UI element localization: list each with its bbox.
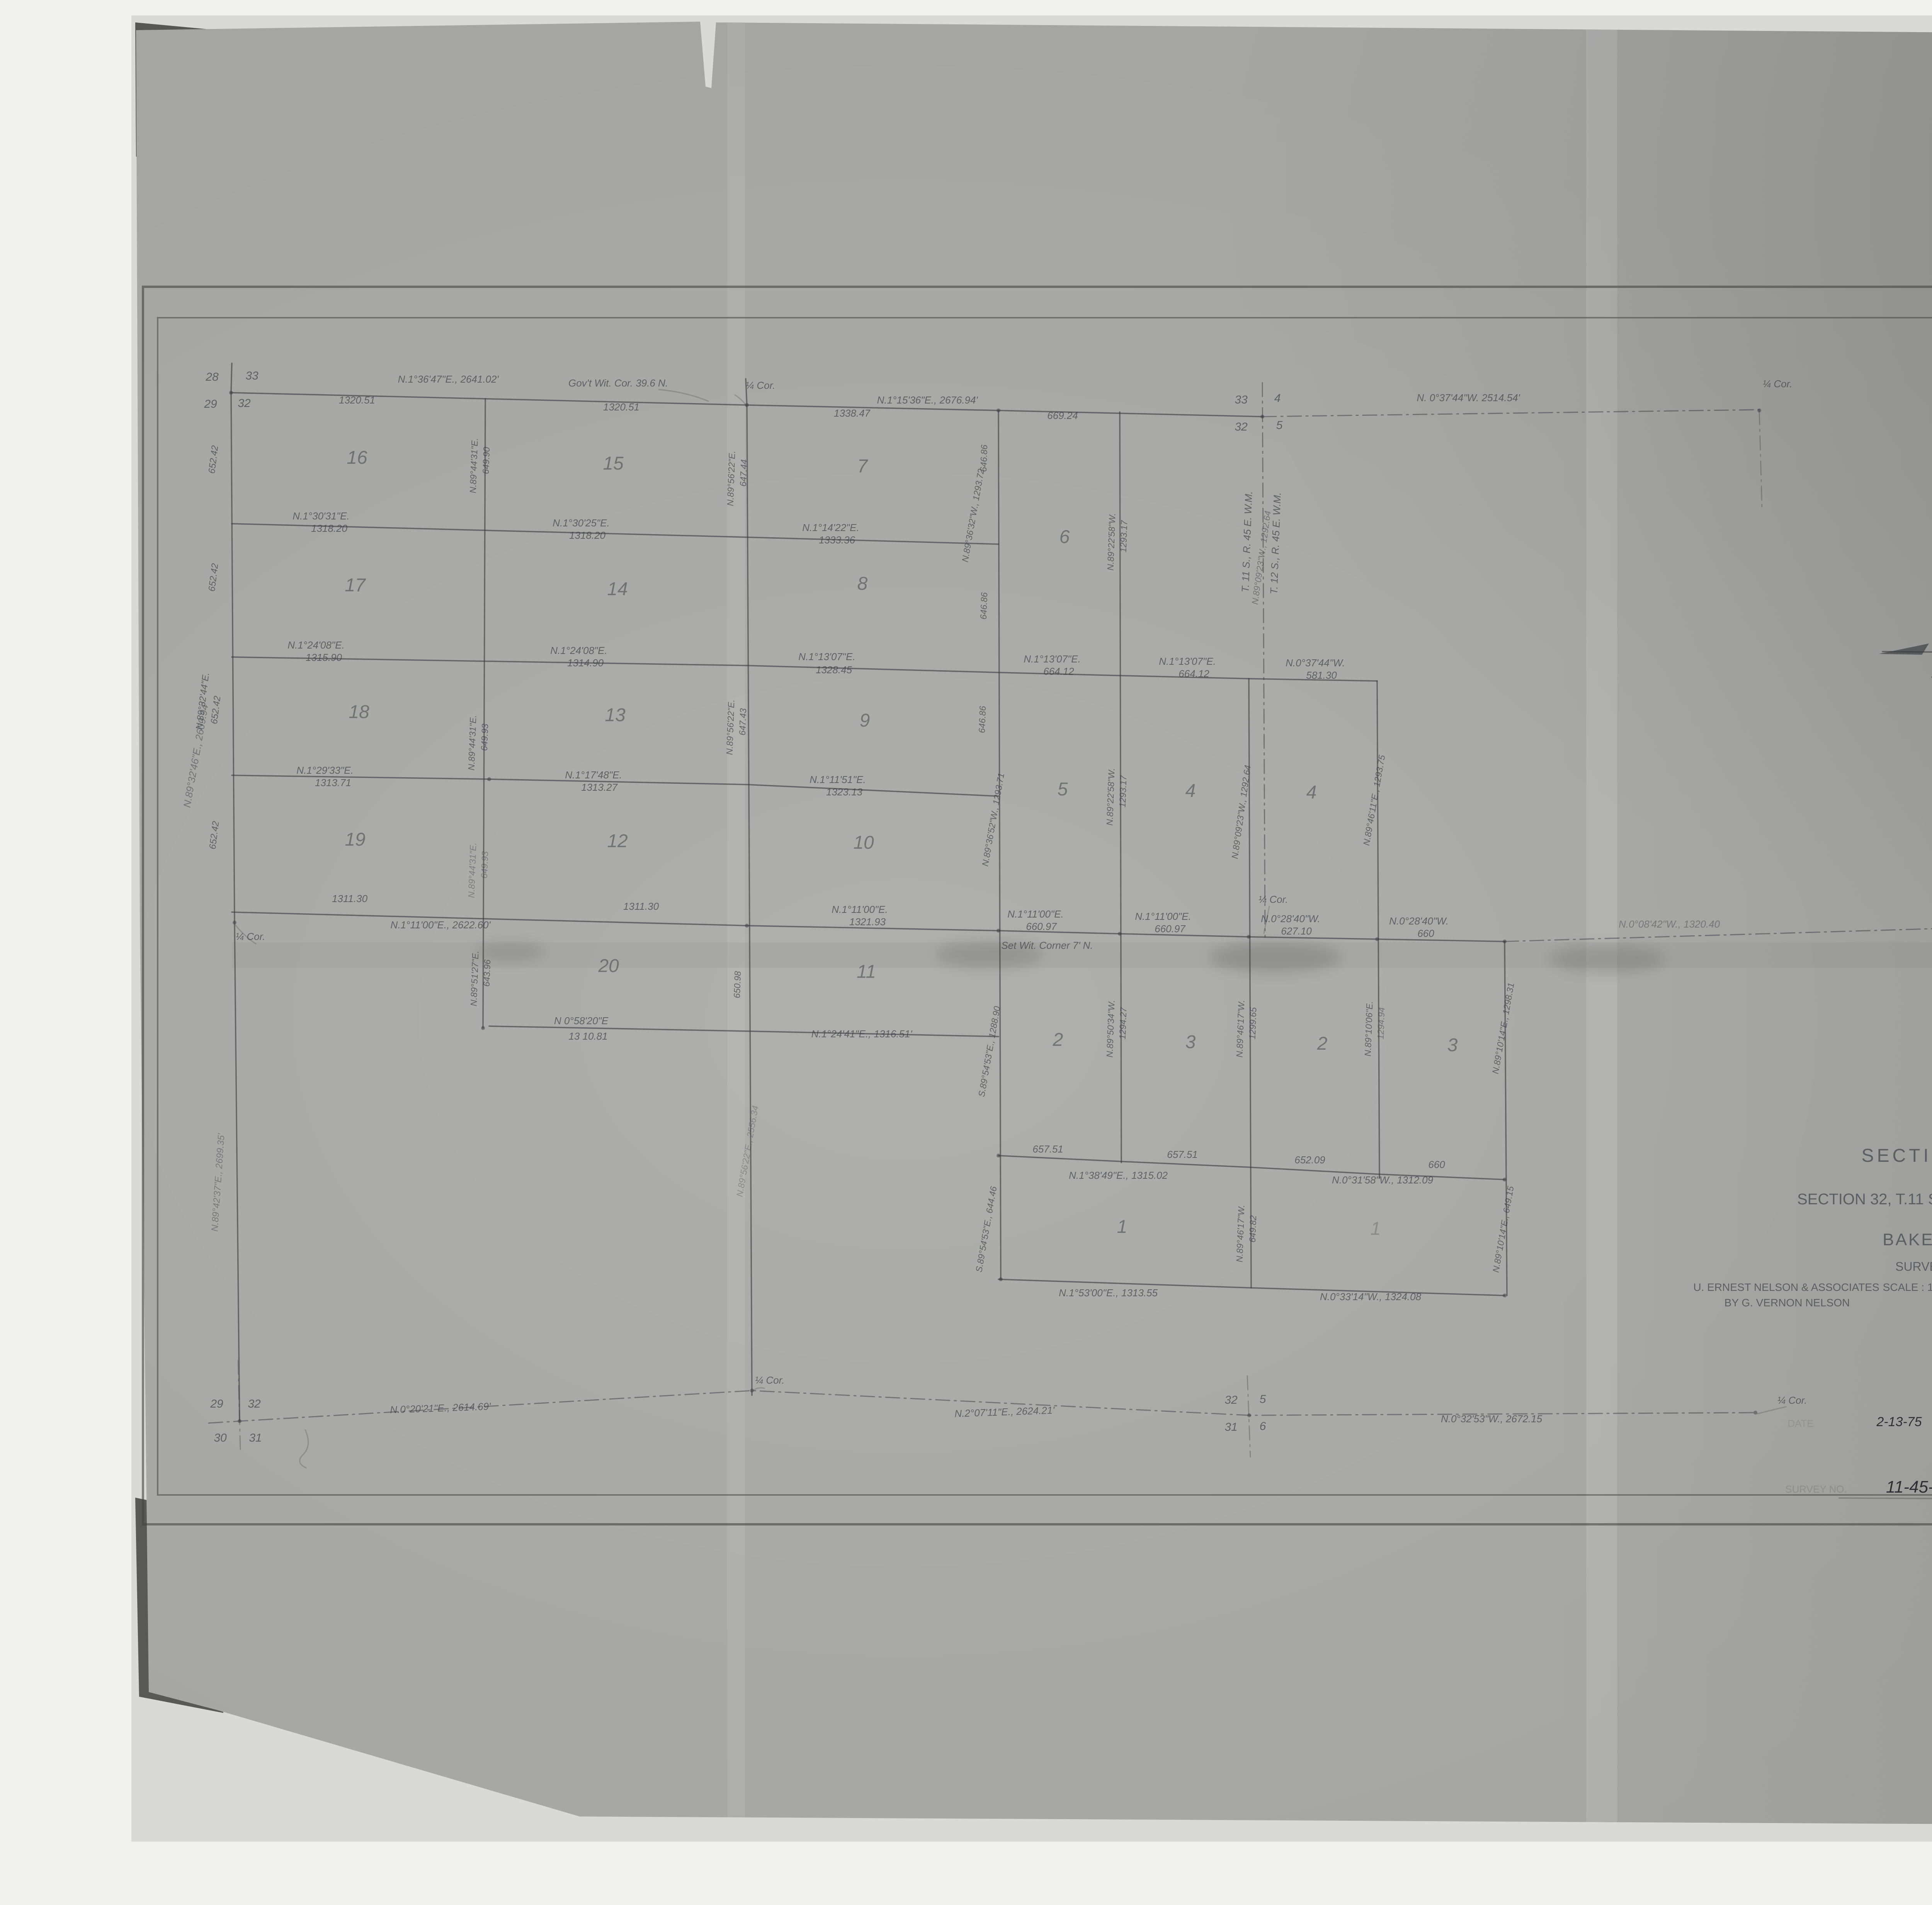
survey-annotation: 646.86	[977, 706, 988, 733]
lot-number: 14	[607, 579, 628, 599]
survey-annotation: N.1°13'07"E.	[798, 651, 855, 662]
survey-annotation: 13 10.81	[568, 1030, 607, 1042]
survey-annotation: N.0°28'40"W.	[1389, 915, 1449, 927]
survey-annotation: N.1°24'08"E.	[550, 645, 607, 656]
survey-annotation: 664.12	[1179, 668, 1209, 679]
survey-annotation: N 0°58'20"E	[554, 1015, 609, 1027]
corner-point	[1503, 1178, 1507, 1181]
lot-number: 15	[603, 453, 624, 474]
survey-annotation: N.1°29'33"E.	[296, 764, 353, 776]
survey-annotation: 646.86	[978, 444, 989, 472]
survey-annotation: N.1°15'36"E., 2676.94'	[877, 394, 978, 406]
survey-annotation: 1293.17	[1118, 520, 1129, 553]
lot-number: 3	[1185, 1032, 1196, 1052]
survey-annotation: N.1°24'41"E., 1316.51'	[811, 1028, 913, 1040]
lot-number: 4	[1306, 782, 1317, 803]
survey-annotation: N.1°30'31"E.	[293, 510, 349, 522]
survey-annotation: N.1°11'00"E.	[832, 904, 888, 915]
survey-annotation: N.1°13'07"E.	[1024, 653, 1080, 665]
survey-annotation: 32	[1225, 1394, 1238, 1406]
scanned-plat-page: 28332932N.1°36'47"E., 2641.02'1320.51Gov…	[0, 0, 1932, 1905]
lot-number: 1	[1371, 1219, 1381, 1239]
survey-annotation: 33	[1235, 393, 1248, 406]
corner-point	[1247, 935, 1251, 939]
corner-point	[997, 929, 1000, 933]
survey-annotation: N.89°10'06"E.	[1363, 1001, 1375, 1057]
survey-annotation: 1315.90	[306, 652, 342, 663]
survey-no-value: 11-45-2	[1886, 1478, 1932, 1496]
survey-annotation: N.1°38'49"E., 1315.02	[1069, 1170, 1168, 1181]
title-by: BY G. VERNON NELSON	[1725, 1297, 1850, 1309]
survey-annotation: 660	[1417, 928, 1434, 939]
survey-annotation: 32	[248, 1398, 261, 1410]
lot-number: 10	[853, 832, 874, 853]
survey-annotation: 650.98	[732, 971, 743, 998]
survey-annotation: N.1°13'07"E.	[1159, 655, 1216, 667]
title-county: BAKER COUNTY, OREGON	[1883, 1230, 1932, 1249]
survey-annotation: N.89°44'31"E.	[468, 438, 480, 494]
survey-annotation: N.1°11'00"E.	[1135, 911, 1191, 922]
survey-annotation: N.0°31'58"W., 1312.09	[1332, 1174, 1433, 1186]
corner-point	[1260, 415, 1264, 419]
corner-point	[997, 409, 1000, 412]
survey-annotation: N.89°50'34"W.	[1104, 1000, 1116, 1058]
survey-annotation: N.1°53'00"E., 1313.55	[1059, 1287, 1158, 1299]
survey-annotation: ¼ Cor.	[1258, 894, 1288, 905]
lot-number: 12	[607, 831, 628, 851]
survey-annotation: 28	[205, 371, 219, 383]
survey-annotation: 1333.36	[819, 534, 855, 546]
survey-annotation: N.89°44'31"E.	[466, 715, 478, 771]
survey-annotation: 29	[204, 398, 217, 410]
survey-annotation: 660.97	[1155, 923, 1186, 935]
survey-annotation: 1320.51	[603, 401, 639, 413]
lot-number: 5	[1058, 779, 1068, 800]
survey-annotation: 660	[1428, 1159, 1445, 1170]
survey-annotation: N.0°32'53"W., 2672.15	[1441, 1413, 1543, 1425]
lot-number: 11	[857, 962, 876, 982]
survey-annotation: 1318.20	[311, 523, 348, 534]
survey-annotation: N.1°24'08"E.	[287, 639, 344, 651]
survey-annotation: 5	[1260, 1393, 1266, 1406]
survey-annotation: 647.43	[737, 708, 748, 735]
survey-annotation: ¼ Cor.	[755, 1374, 784, 1386]
survey-annotation: N.89°51'27"E.	[469, 951, 481, 1006]
lot-number: 1	[1117, 1217, 1128, 1237]
survey-annotation: 649.82	[1247, 1215, 1258, 1243]
survey-annotation: 627.10	[1281, 925, 1312, 937]
survey-annotation: N.0°28'40"W.	[1261, 913, 1320, 924]
survey-annotation: 1314.90	[567, 657, 604, 669]
survey-no-underline	[1839, 1498, 1932, 1499]
survey-annotation: 581.30	[1306, 669, 1337, 681]
survey-annotation: N.89°46'17"W.	[1234, 1205, 1246, 1263]
survey-annotation: 649.90	[481, 447, 492, 474]
survey-annotation: N.1°30'25"E.	[553, 517, 609, 529]
survey-annotation: N.1°36'47"E., 2641.02'	[398, 373, 499, 385]
survey-annotation: 1338.47	[834, 407, 871, 419]
survey-annotation: 1313.27	[581, 781, 618, 793]
survey-annotation: N.1°11'51"E.	[810, 774, 866, 785]
survey-annotation: ¼ Cor.	[1777, 1394, 1807, 1406]
survey-annotation: 646.86	[978, 592, 989, 620]
corner-point	[1503, 940, 1507, 943]
survey-annotation: 1318.20	[569, 529, 606, 541]
lot-number: 6	[1060, 527, 1070, 547]
lot-number: 3	[1447, 1035, 1458, 1055]
survey-annotation: N.89°44'31"E.	[466, 843, 478, 898]
survey-annotation: 31	[249, 1432, 262, 1444]
survey-annotation: N.1°14'22"E.	[802, 522, 859, 533]
title-surveyed: SURVEYED; APRIL, MAY & JUNE, 1949	[1895, 1260, 1932, 1273]
survey-annotation: N.89°22'58"W.	[1105, 513, 1117, 571]
survey-annotation: N.1°11'00"E., 2622.60'	[391, 919, 491, 931]
survey-annotation: 649.93	[479, 724, 490, 751]
lot-number: 19	[345, 829, 365, 850]
survey-annotation: N. 0°37'44"W. 2514.54'	[1417, 392, 1520, 403]
survey-annotation: N.0°33'14"W., 1324.08	[1320, 1291, 1422, 1302]
corner-point	[997, 1154, 1000, 1158]
survey-annotation: 649.93	[479, 851, 490, 878]
corner-point	[745, 924, 749, 928]
survey-annotation: 33	[245, 369, 259, 382]
lot-number: 20	[598, 956, 619, 976]
page-title: SECTIONAL SUBDIVISION	[1861, 1146, 1932, 1166]
corner-point	[229, 391, 233, 395]
lot-number: 13	[605, 705, 626, 725]
survey-annotation: N.0°37'44"W.	[1286, 657, 1345, 669]
corner-point	[238, 1419, 241, 1423]
survey-annotation: 6	[1260, 1420, 1266, 1433]
lot-number: 2	[1053, 1030, 1063, 1050]
survey-annotation: N.1°17'48"E.	[565, 769, 622, 781]
corner-point	[1375, 937, 1379, 941]
corner-point	[1757, 409, 1761, 412]
survey-annotation: ¼ Cor.	[1762, 378, 1792, 390]
title-sections: SECTION 32, T.11 S., R.45 E. & SECTION 5…	[1797, 1191, 1932, 1208]
survey-annotation: 4	[1274, 392, 1281, 405]
lot-number: 16	[347, 448, 367, 468]
title-scale: SCALE : 1" = 400'	[1883, 1281, 1932, 1293]
survey-annotation: ¼ Cor.	[745, 380, 775, 391]
survey-annotation: 652.09	[1294, 1154, 1325, 1166]
survey-annotation: N.89°56'22"E.	[725, 451, 737, 506]
fold-smudge	[475, 941, 545, 962]
lot-number: 2	[1317, 1033, 1328, 1054]
survey-annotation: 647.44	[738, 459, 749, 487]
lot-number: 17	[345, 575, 366, 596]
filing-date-label: DATE	[1787, 1418, 1813, 1429]
survey-annotation: 1320.51	[339, 394, 375, 406]
corner-point	[1247, 1413, 1251, 1417]
lot-number: 4	[1185, 781, 1196, 801]
survey-annotation: 1323.13	[826, 786, 863, 798]
survey-annotation: 29	[210, 1398, 223, 1410]
survey-annotation: 1321.93	[849, 916, 886, 928]
survey-annotation: N.1°11'00"E.	[1007, 908, 1064, 920]
survey-annotation: 657.51	[1032, 1143, 1063, 1155]
title-firm: U. ERNEST NELSON & ASSOCIATES	[1693, 1281, 1879, 1293]
lot-number: 7	[857, 456, 869, 477]
corner-point	[1118, 932, 1122, 936]
corner-point	[999, 1277, 1003, 1281]
survey-annotation: 31	[1225, 1421, 1237, 1433]
lot-number: 9	[860, 710, 870, 731]
survey-annotation: 32	[238, 397, 251, 410]
survey-annotation: N.89°46'17"W.	[1234, 1000, 1246, 1058]
fold-smudge	[1549, 945, 1665, 973]
survey-annotation: 657.51	[1167, 1149, 1198, 1160]
survey-annotation: 1293.17	[1117, 775, 1129, 808]
survey-annotation: ¼ Cor.	[235, 931, 265, 942]
survey-annotation: 1294.27	[1117, 1007, 1129, 1040]
survey-annotation: 30	[214, 1432, 227, 1444]
survey-annotation: 1311.30	[332, 893, 368, 904]
survey-annotation: N.89°22'58"W.	[1104, 768, 1116, 826]
survey-annotation: 5	[1276, 419, 1283, 432]
plat-canvas: 28332932N.1°36'47"E., 2641.02'1320.51Gov…	[0, 0, 1932, 1905]
survey-annotation: 32	[1235, 420, 1248, 433]
survey-annotation: 669.24	[1047, 410, 1078, 421]
corner-point	[1503, 1294, 1507, 1297]
survey-annotation: 643.96	[481, 959, 492, 987]
survey-annotation: 1328.45	[816, 664, 852, 676]
fold-smudge	[1209, 942, 1341, 973]
survey-annotation: N.0°08'42"W., 1320.40	[1619, 918, 1720, 930]
survey-annotation: Set Wit. Corner 7' N.	[1001, 940, 1093, 951]
survey-annotation: Gov't Wit. Cor. 39.6 N.	[568, 377, 668, 389]
lot-number: 18	[349, 702, 369, 722]
corner-point	[233, 921, 236, 924]
survey-annotation: 1313.71	[315, 777, 351, 788]
survey-annotation: 660.97	[1026, 921, 1057, 932]
survey-no-label: SURVEY NO.	[1785, 1483, 1847, 1495]
survey-annotation: N.89°56'22"E.	[724, 700, 736, 755]
corner-point	[481, 1026, 485, 1030]
survey-annotation: 664.12	[1043, 666, 1074, 677]
survey-annotation: 1294.94	[1376, 1007, 1387, 1040]
lot-number: 8	[857, 574, 868, 594]
survey-annotation: 1311.30	[623, 901, 659, 912]
filing-date-value: 2-13-75	[1876, 1415, 1922, 1429]
corner-point	[487, 777, 491, 781]
survey-annotation: 1299.65	[1247, 1007, 1259, 1040]
